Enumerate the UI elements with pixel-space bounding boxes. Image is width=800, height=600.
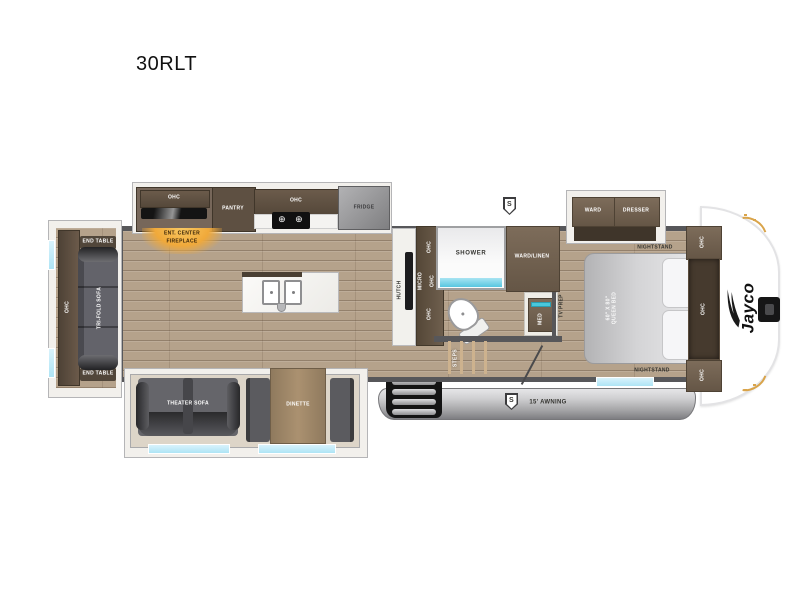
dinette-label: DINETTE [286,402,310,408]
bedroom-window [596,377,654,387]
dresser-label: DRESSER [623,208,649,214]
entry-step [392,409,436,415]
hutch-tv [405,252,413,310]
page-title: 30RLT [136,53,197,76]
speaker-badge-top-letter: S [507,201,512,209]
galley-ohc-top-label: OHC [427,241,433,253]
dinette-bench-right [330,378,354,442]
rear-ohc-label: OHC [65,301,71,313]
sink-drain [292,291,295,294]
rear-slide-window-top [48,240,55,270]
theater-sofa-armrest-left [136,382,149,430]
galley-ohc-mid-label: OHC [430,275,436,287]
bed-type-text: QUEEN BED [612,292,618,324]
ent-center-label: ENT. CENTER [164,231,200,237]
bedroom-ohc-top-label: OHC [700,236,706,248]
entertainment-shelf [141,208,207,219]
burner-icon: ⊕ [295,215,303,225]
ward-linen-label: WARD/LINEN [515,254,550,260]
galley-ohc-bottom-label: OHC [427,308,433,320]
kitchen-ohc-left-label: OHC [168,195,180,201]
brand-logo: Jayco [726,283,759,334]
bed-size-label: 60" X 80" QUEEN BED [607,292,618,324]
dinette-bench-left [246,378,270,442]
interior-step [472,341,475,374]
entry-step [392,399,436,405]
tv-screen [531,302,551,307]
bedroom-ohc-bottom-label: OHC [700,369,706,381]
nightstand-top-label: NIGHTSTAND [637,245,672,251]
awning-label: 15' AWNING [529,400,566,407]
galley-micro-label: MICRO [418,272,424,290]
interior-step [460,341,463,374]
front-cap-accent-dot [744,214,747,216]
shower-water [440,278,502,287]
rear-slide-window-bottom [48,348,55,378]
brand-logo-text: Jayco [739,283,758,334]
speaker-badge-awning-letter: S [509,397,514,405]
front-cap-accent-dot [753,219,756,221]
theater-sofa-label: THEATER SOFA [167,401,209,407]
sofa-armrest-top [78,247,118,262]
end-table-bottom-label: END TABLE [83,371,114,377]
sink-drain [270,291,273,294]
fireplace-label: FIREPLACE [166,239,197,245]
island-edge [242,272,302,277]
interior-step [484,341,487,374]
front-cap-accent-dot [753,384,756,386]
entry-step [392,389,436,395]
ward-label: WARD [585,208,601,214]
floorplan-canvas: 30RLT Jayco S 15' AWNING S OHC END TABLE… [0,0,800,600]
bottom-slide-window-left [148,444,230,454]
burner-icon: ⊕ [278,215,286,225]
med-label: MED [538,313,544,325]
fridge-label: FRIDGE [354,205,375,211]
bedroom-slide-base [574,227,656,241]
bottom-slide-window-right [258,444,336,454]
steps-label: STEPS [453,349,459,367]
bath-bedroom-wall [552,292,556,342]
front-cap-accent-dot [744,389,747,391]
theater-sofa-armrest-right [227,382,240,430]
kitchen-ohc-range-label: OHC [290,198,302,204]
sofa-armrest-bottom [78,355,118,370]
hutch-label: HUTCH [397,281,403,300]
pantry-label: PANTRY [222,206,244,212]
tv-prep-label: TV PREP [559,294,565,318]
bedroom-ohc-mid-label: OHC [701,303,707,315]
hitch-pin-slot [765,304,774,315]
shower-label: SHOWER [456,251,487,258]
end-table-top-label: END TABLE [83,239,114,245]
nightstand-bottom-label: NIGHTSTAND [634,368,669,374]
tri-fold-sofa-label: TRI-FOLD SOFA [97,287,103,329]
bath-wall [434,336,562,342]
interior-step [448,341,451,374]
faucet [277,303,286,312]
